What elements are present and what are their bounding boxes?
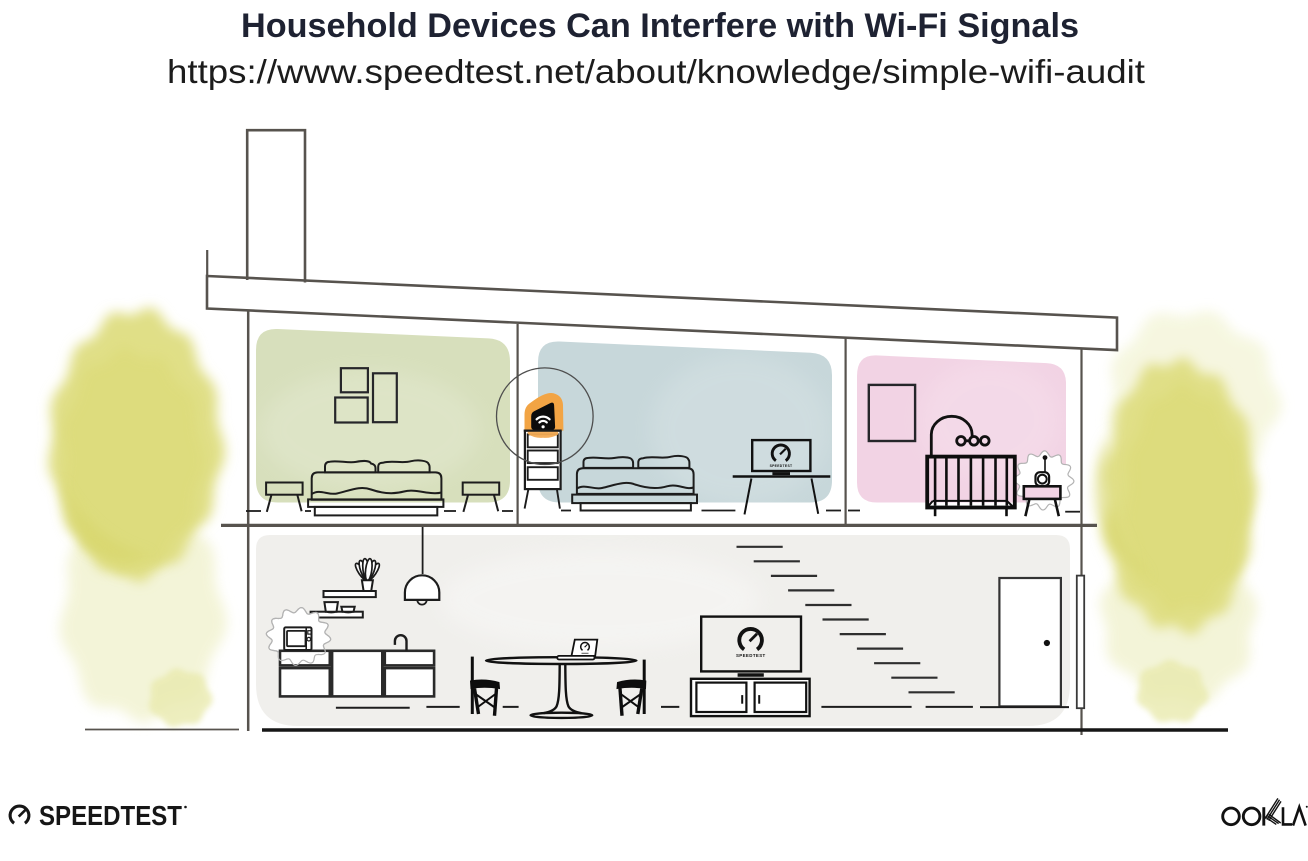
svg-text:https://www.speedtest.net/abou: https://www.speedtest.net/about/knowledg… (167, 53, 1145, 90)
svg-text:SPEEDTEST: SPEEDTEST (736, 653, 766, 658)
svg-text:Household Devices Can Interfer: Household Devices Can Interfere with Wi-… (241, 7, 1079, 45)
svg-text:SPEEDTEST: SPEEDTEST (39, 800, 182, 831)
svg-text:SPEEDTEST: SPEEDTEST (770, 464, 793, 468)
